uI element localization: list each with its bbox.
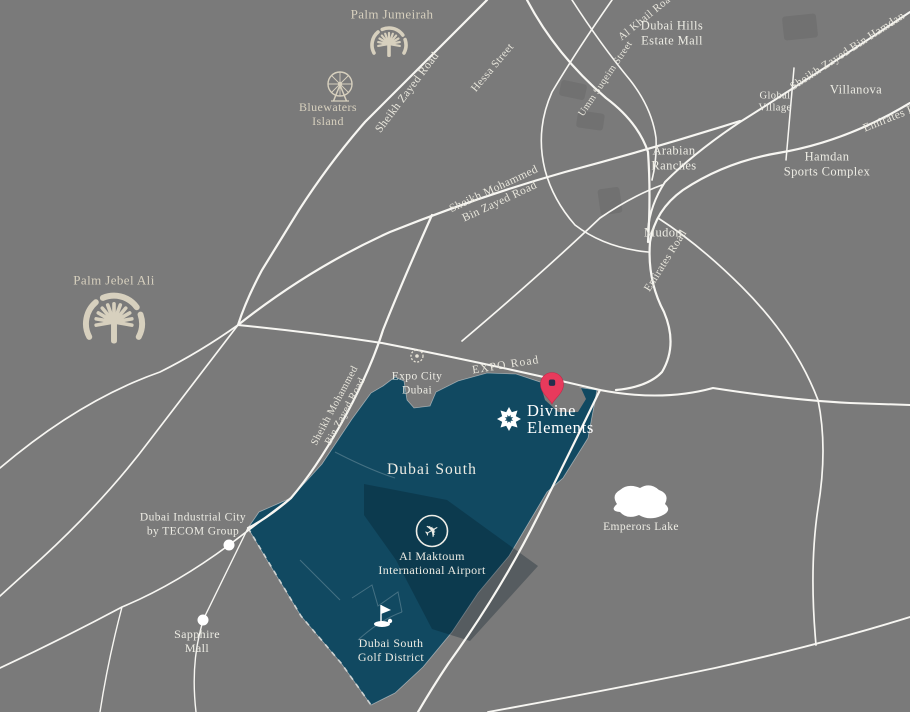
palm-jebel-ali-icon [86,296,142,344]
divine-elements-label: Divine Elements [527,402,594,437]
road-line [0,325,238,468]
road-line [100,607,122,712]
map-canvas: ✈ [0,0,910,712]
road-sheikh-zayed-line [238,0,487,325]
expo-dome-icon [411,350,423,362]
emperors-lake-shape [614,485,669,518]
sapphire-mall-dot [198,615,209,626]
location-map: ✈ Palm Ju [0,0,910,712]
palm-jumeirah-icon [372,28,406,57]
road-line [0,325,238,596]
road-line [488,617,910,712]
road-line [658,218,823,645]
road-szbh-line [648,12,910,230]
building-blocks [559,13,819,215]
road-line [0,498,291,668]
road-line [786,68,794,160]
ferris-wheel-icon [328,72,352,101]
dubai-industrial-city-dot [224,540,235,551]
